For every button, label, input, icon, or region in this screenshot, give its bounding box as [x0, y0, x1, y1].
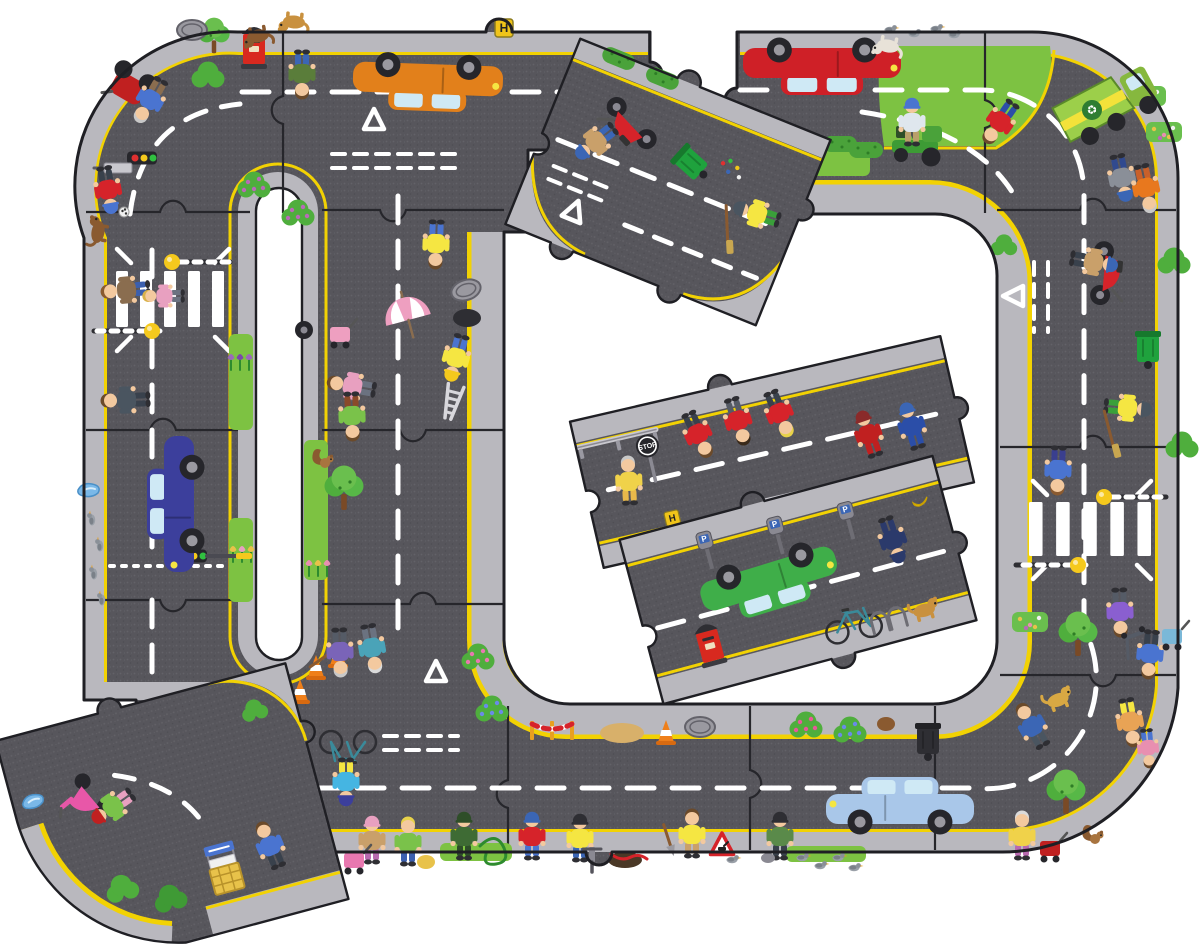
wheelc [295, 321, 313, 339]
stool [761, 853, 775, 863]
bird [727, 855, 742, 863]
verge-left-1 [229, 334, 253, 430]
puddle [78, 484, 99, 497]
open-manhole [453, 309, 481, 327]
tan-dog [278, 11, 310, 34]
manhole [685, 717, 715, 737]
tlight [127, 152, 157, 165]
yellow-case [417, 855, 435, 869]
bird [815, 861, 830, 869]
die-cut-slot [256, 188, 302, 660]
puzzle-photo: H♻ HSTOP PPP [0, 0, 1200, 952]
gravel-pile [600, 723, 644, 743]
teddy-bear [877, 717, 895, 731]
ballf [119, 207, 129, 217]
flowerbed [1146, 122, 1182, 142]
flowerbed [1012, 612, 1048, 632]
hedge [849, 142, 883, 158]
road-jigsaw-image: H♻ HSTOP PPP [0, 0, 1200, 952]
tulips [306, 560, 331, 576]
tulips [228, 354, 253, 370]
bird [849, 863, 864, 871]
